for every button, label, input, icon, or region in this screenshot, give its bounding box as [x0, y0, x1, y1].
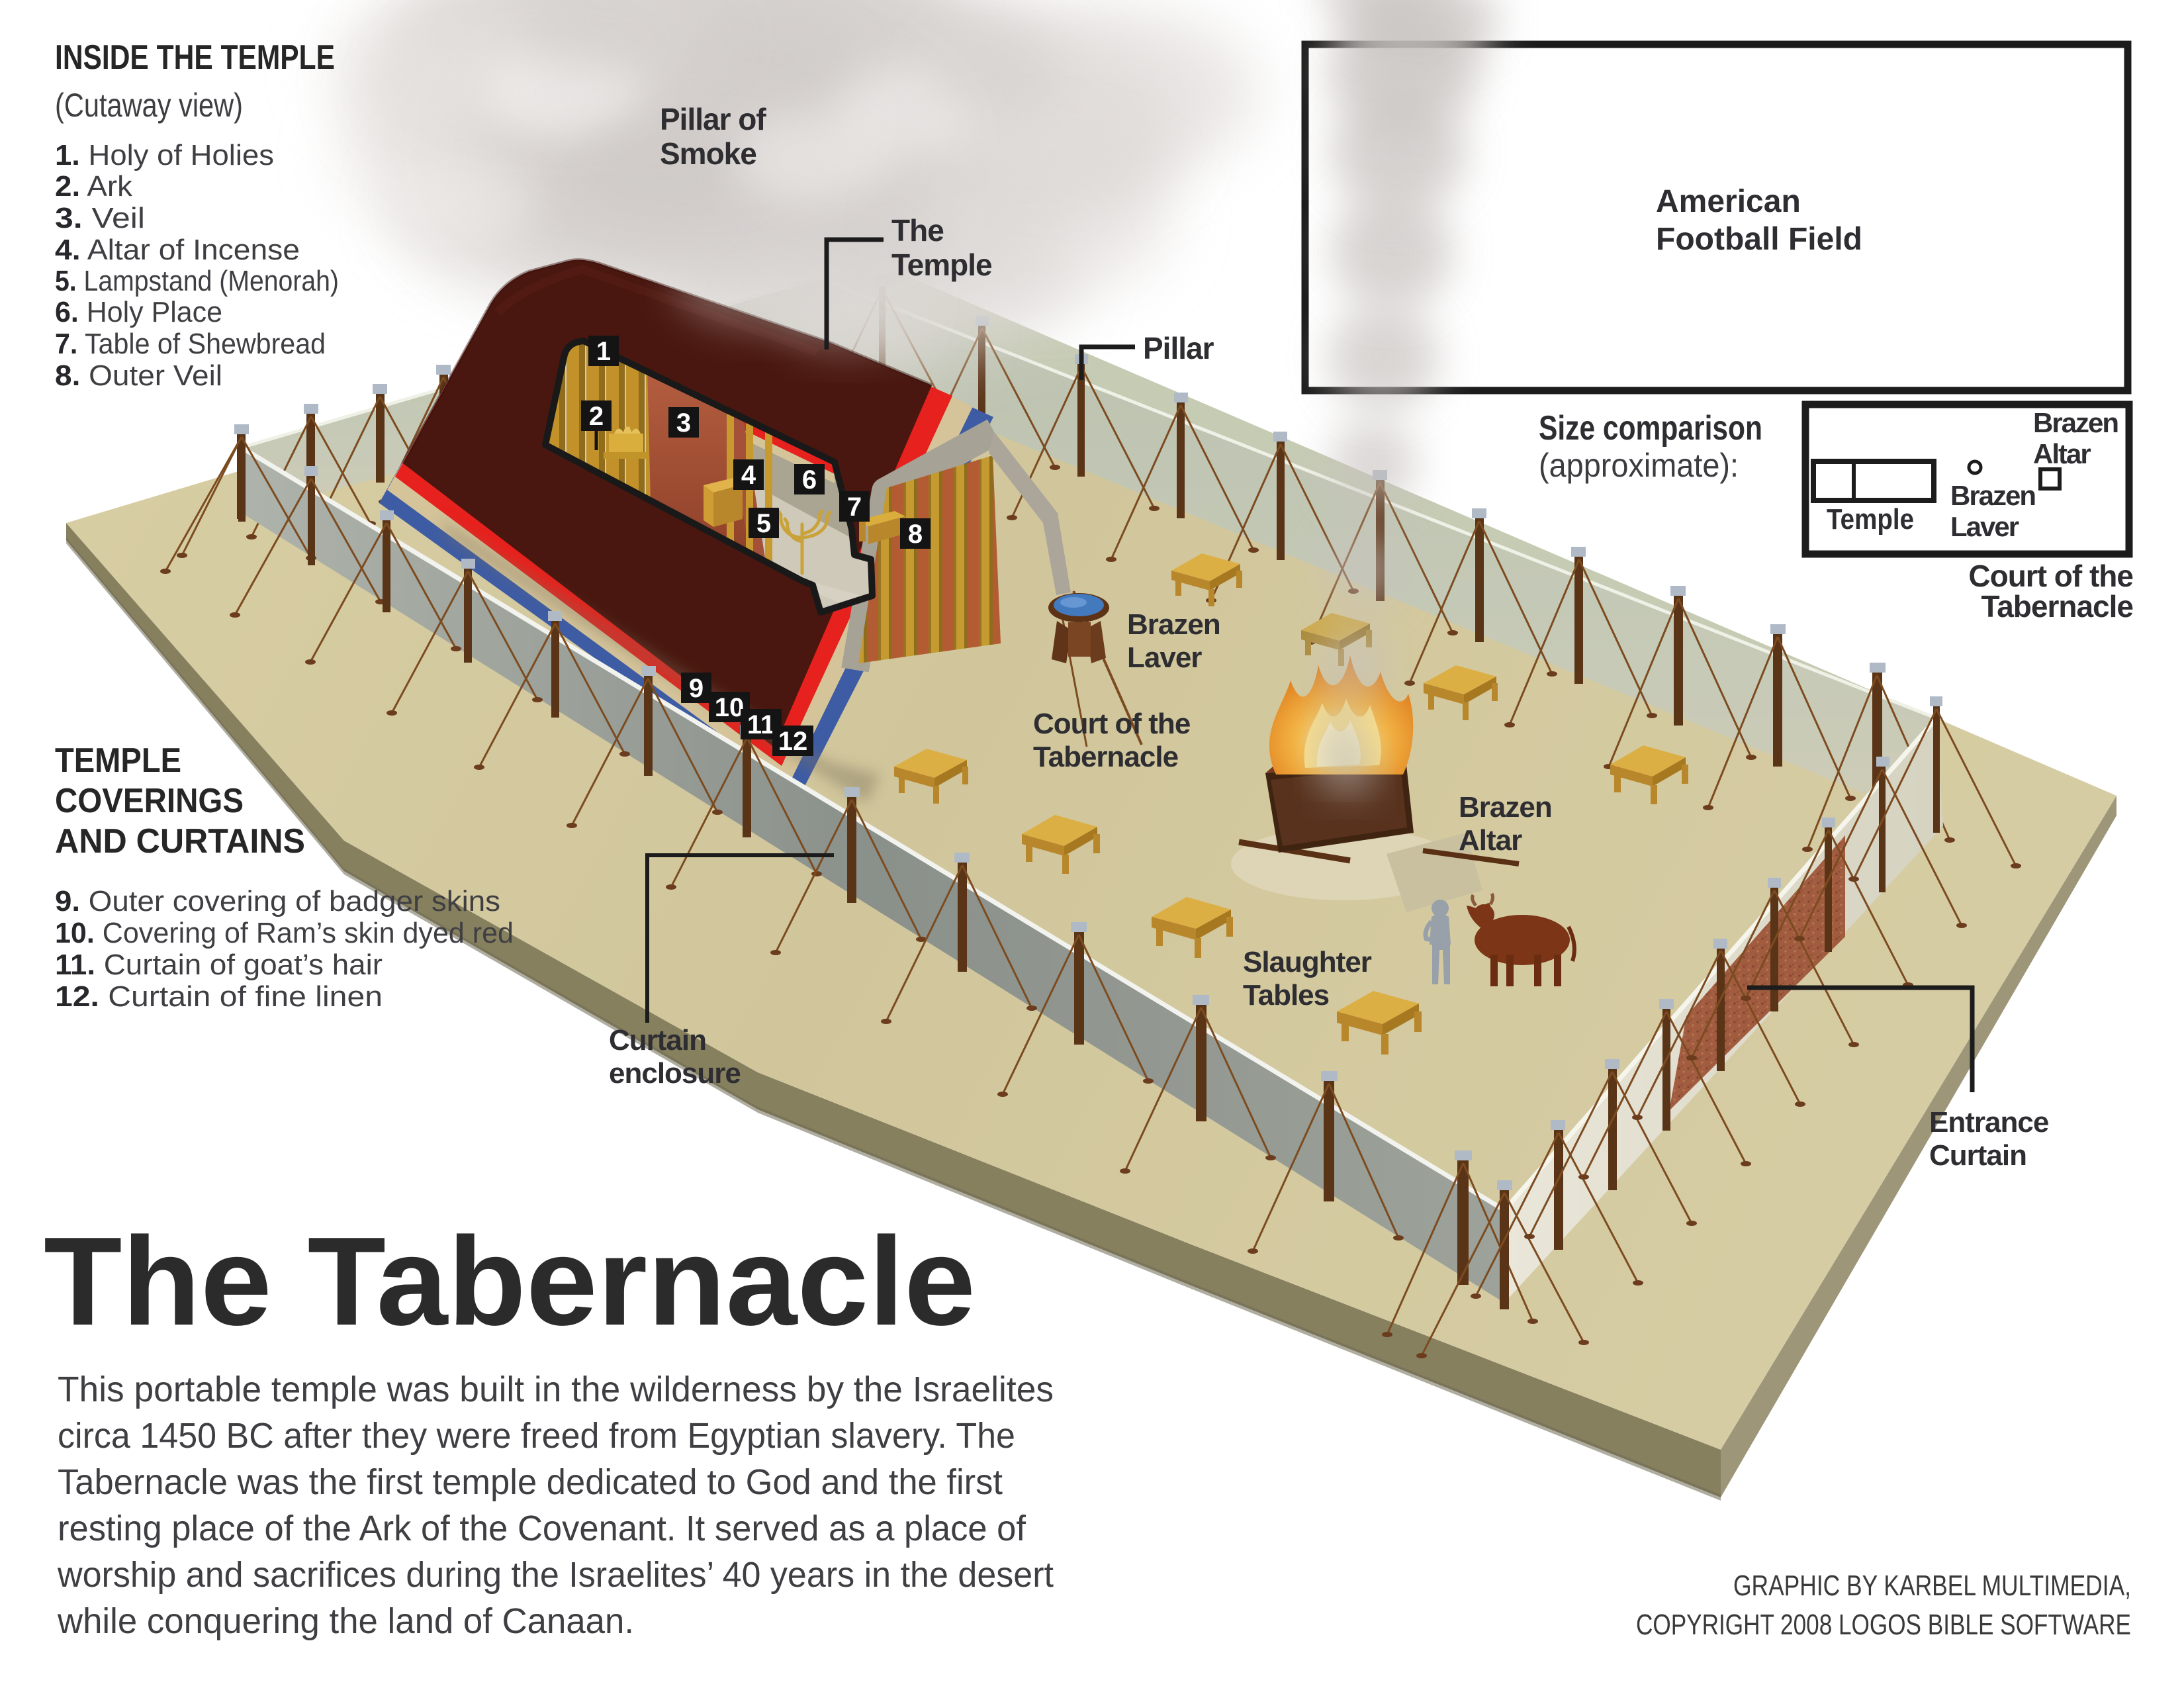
svg-text:INSIDE THE TEMPLE: INSIDE THE TEMPLE: [55, 38, 335, 77]
svg-text:(approximate):: (approximate):: [1539, 447, 1739, 484]
svg-text:4: 4: [741, 461, 756, 490]
svg-text:2: 2: [589, 402, 604, 431]
svg-text:3: 3: [676, 408, 691, 438]
svg-text:6. Holy Place: 6. Holy Place: [55, 296, 222, 328]
svg-text:(Cutaway view): (Cutaway view): [55, 87, 243, 124]
svg-text:2. Ark: 2. Ark: [55, 170, 133, 203]
svg-text:5: 5: [756, 509, 771, 538]
svg-text:Pillar: Pillar: [1143, 331, 1214, 365]
svg-text:resting place of the Ark of th: resting place of the Ark of the Covenant…: [58, 1509, 1026, 1548]
svg-text:Pillar ofSmoke: Pillar ofSmoke: [660, 102, 766, 171]
svg-text:Tabernacle was the first templ: Tabernacle was the first temple dedicate…: [58, 1462, 1003, 1502]
svg-text:7. Table of Shewbread: 7. Table of Shewbread: [55, 328, 326, 360]
svg-text:Size comparison: Size comparison: [1539, 409, 1762, 447]
svg-text:worship and sacrifices during: worship and sacrifices during the Israel…: [57, 1555, 1054, 1595]
svg-text:8. Outer Veil: 8. Outer Veil: [55, 359, 222, 392]
svg-text:10. Covering of Ram’s skin dye: 10. Covering of Ram’s skin dyed red: [55, 917, 514, 949]
svg-text:Temple: Temple: [1827, 503, 1914, 536]
svg-text:11. Curtain of goat’s hair: 11. Curtain of goat’s hair: [55, 949, 383, 981]
svg-text:The Tabernacle: The Tabernacle: [44, 1211, 976, 1352]
svg-text:9. Outer covering of badger sk: 9. Outer covering of badger skins: [55, 885, 500, 917]
svg-text:1: 1: [596, 337, 611, 366]
svg-text:This portable temple was built: This portable temple was built in the wi…: [58, 1370, 1054, 1409]
svg-text:Court of theTabernacle: Court of theTabernacle: [1968, 559, 2133, 624]
svg-text:circa 1450 BC after they were: circa 1450 BC after they were freed from…: [58, 1416, 1015, 1456]
svg-text:while conquering the land of C: while conquering the land of Canaan.: [57, 1601, 634, 1641]
svg-text:12. Curtain of fine linen: 12. Curtain of fine linen: [55, 980, 383, 1013]
svg-text:Court of theTabernacle: Court of theTabernacle: [1033, 708, 1190, 773]
svg-text:1. Holy of Holies: 1. Holy of Holies: [55, 139, 274, 171]
svg-text:9: 9: [689, 674, 704, 703]
svg-text:12: 12: [778, 727, 808, 756]
svg-text:6: 6: [802, 465, 817, 494]
svg-text:11: 11: [747, 710, 775, 739]
svg-text:7: 7: [847, 492, 862, 522]
svg-text:8: 8: [908, 520, 923, 549]
svg-text:10: 10: [715, 693, 745, 722]
svg-text:5. Lampstand (Menorah): 5. Lampstand (Menorah): [55, 265, 339, 297]
svg-text:4. Altar of Incense: 4. Altar of Incense: [55, 234, 300, 266]
svg-text:3. Veil: 3. Veil: [55, 202, 145, 234]
